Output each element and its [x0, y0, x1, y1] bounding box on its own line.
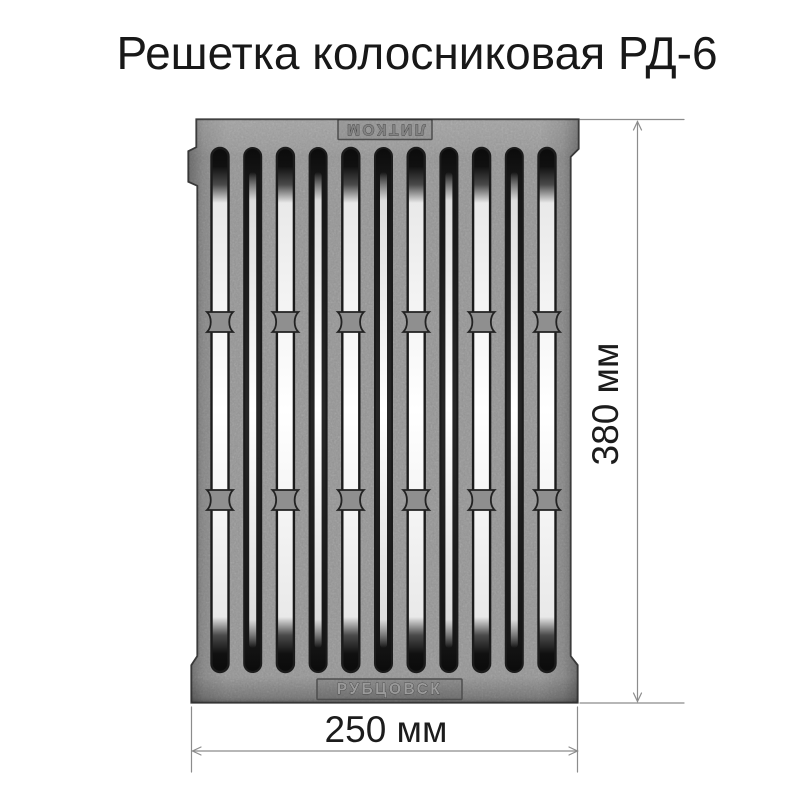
width-dim-label: 250 мм: [325, 709, 448, 750]
slot-bridge: [403, 490, 429, 510]
slot-bridge: [272, 312, 298, 332]
grate-slot: [539, 148, 556, 672]
product-card: Решетка колосниковая РД-6: [0, 0, 800, 800]
slot-bridge: [469, 312, 495, 332]
grate-figure: ЛИТКОМ РУБЦОВСК 380 мм: [0, 0, 800, 800]
slot-bridge: [534, 490, 560, 510]
grate-slot: [473, 148, 490, 672]
slot-bridge: [534, 312, 560, 332]
slot-bridge: [207, 312, 233, 332]
slot-bridge: [469, 490, 495, 510]
height-dim-label: 380 мм: [585, 343, 626, 466]
top-marking-text: ЛИТКОМ: [345, 121, 426, 138]
bottom-marking-plaque: РУБЦОВСК: [317, 679, 462, 700]
slot-slit: [315, 172, 322, 648]
slot-slit: [380, 172, 387, 648]
slot-slit: [445, 172, 452, 648]
grate-slot: [342, 148, 359, 672]
bottom-marking-text: РУБЦОВСК: [337, 681, 443, 698]
slot-bridge: [403, 312, 429, 332]
grate-slot: [277, 148, 294, 672]
slot-bridge: [338, 312, 364, 332]
slot-bridge: [272, 490, 298, 510]
slot-slit: [249, 172, 256, 648]
grate-slot: [408, 148, 425, 672]
grate-slot: [212, 148, 229, 672]
slot-slit: [511, 172, 518, 648]
slot-bridge: [207, 490, 233, 510]
width-dimension: 250 мм: [192, 707, 578, 772]
grate-slots: [207, 148, 560, 672]
grate-image: ЛИТКОМ РУБЦОВСК: [188, 119, 579, 703]
top-marking-plaque: ЛИТКОМ: [338, 120, 432, 140]
height-dimension: 380 мм: [580, 120, 684, 704]
slot-bridge: [338, 490, 364, 510]
